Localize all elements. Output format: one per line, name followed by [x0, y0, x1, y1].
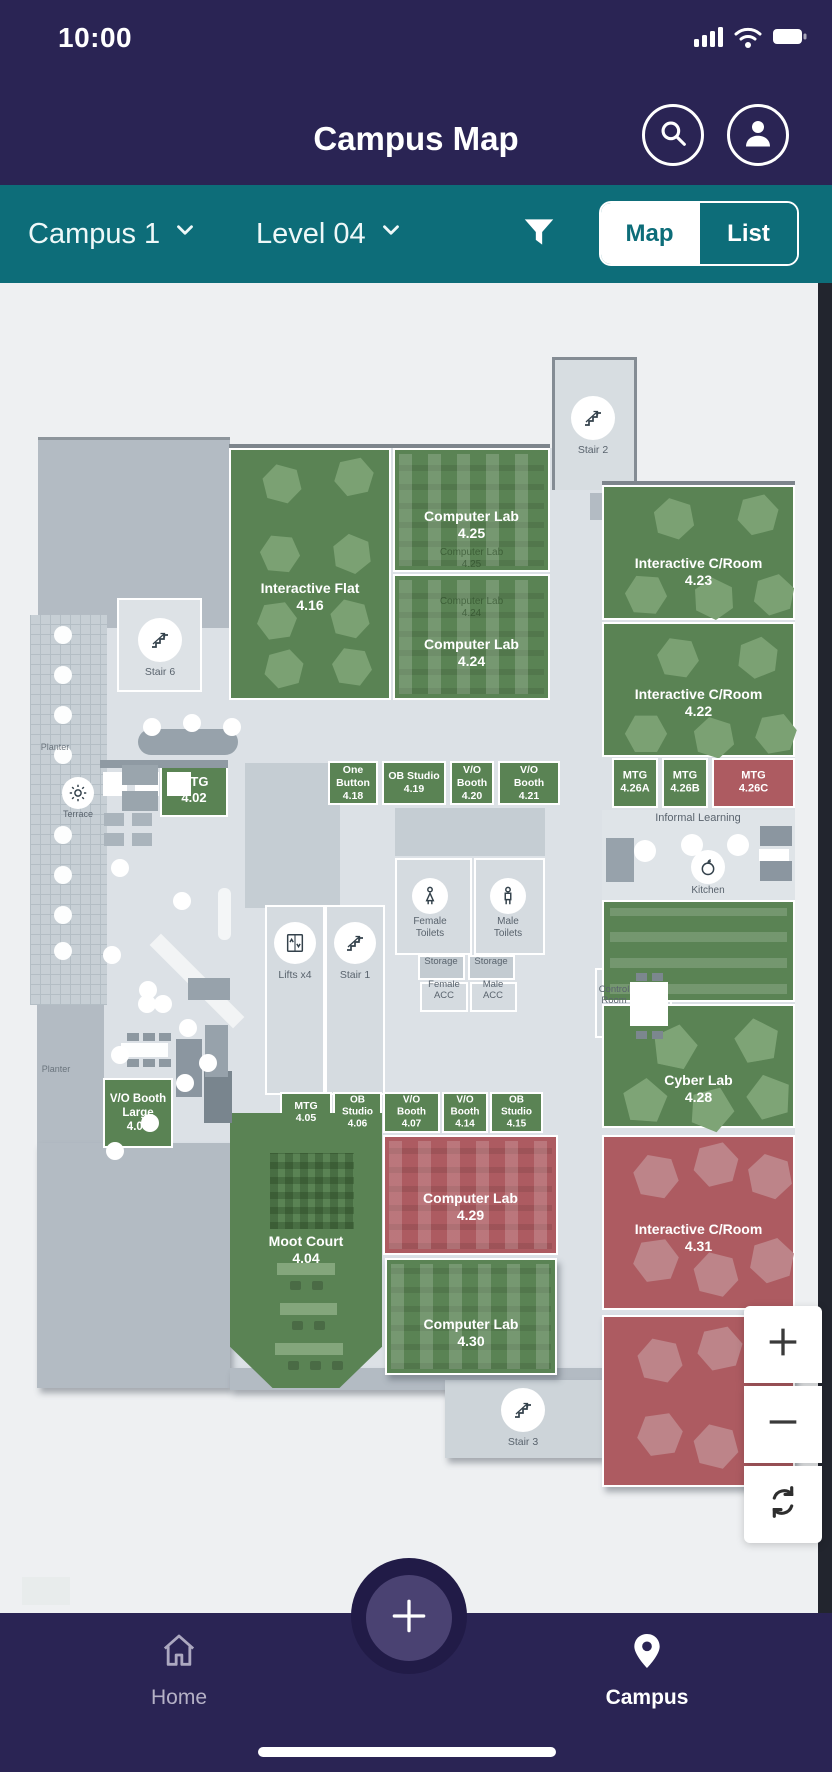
room-label-computer-lab-429: Computer Lab4.29 [385, 1190, 556, 1224]
table-cluster [629, 1151, 684, 1202]
room-label-interactive-croom-422: Interactive C/Room4.22 [604, 686, 793, 720]
bench-table [280, 1303, 337, 1315]
home-icon [159, 1631, 199, 1676]
chair [652, 973, 663, 981]
table-cluster [730, 631, 786, 684]
room-vo-booth-421[interactable]: V/OBooth4.21 [498, 761, 560, 805]
room-ob-studio-415[interactable]: OBStudio4.15 [490, 1092, 543, 1133]
room-caption-computer-lab-424: Computer Lab4.24 [395, 596, 548, 619]
room-label-mtg-405: MTG4.05 [282, 1100, 330, 1126]
seating-rows [270, 1153, 354, 1229]
search-icon [656, 116, 690, 155]
label-informal-learning: Informal Learning [628, 812, 768, 825]
map-zoom-controls [744, 1306, 822, 1543]
round-table [727, 834, 749, 856]
female-toilets-icon [412, 878, 448, 914]
table-cluster [633, 1410, 687, 1459]
room-label-ob-studio-419: OB Studio4.19 [384, 770, 444, 796]
table-cluster [687, 1420, 744, 1474]
label-planter-north: Planter [0, 742, 125, 753]
room-label-interactive-croom-423: Interactive C/Room4.23 [604, 555, 793, 589]
terrace-table [54, 906, 72, 924]
campus-selector[interactable]: Campus 1 [28, 185, 198, 283]
table-cluster [257, 460, 307, 507]
male-toilets-label: MaleToilets [453, 916, 563, 940]
person-icon [740, 115, 776, 156]
nav-home-label: Home [151, 1686, 207, 1710]
round-table [179, 1019, 197, 1037]
stair-1-icon [334, 922, 376, 964]
round-table [176, 1074, 194, 1092]
room-label-vo-booth-large-403: V/O BoothLarge4.03 [105, 1092, 171, 1134]
filter-button[interactable] [514, 209, 564, 259]
terrace-table [54, 706, 72, 724]
room-computer-lab-424[interactable]: Computer Lab4.24Computer Lab4.24 [393, 574, 550, 700]
room-ob-studio-406[interactable]: OBStudio4.06 [333, 1092, 382, 1133]
refresh-icon [764, 1483, 802, 1526]
room-label-computer-lab-430: Computer Lab4.30 [387, 1316, 555, 1350]
label-male-acc: MaleACC [423, 979, 563, 1002]
toggle-list[interactable]: List [698, 203, 797, 264]
round-table [634, 840, 656, 862]
table-cluster [741, 1149, 800, 1205]
room-one-button-418[interactable]: OneButton4.18 [328, 761, 378, 805]
room-label-mtg-426a: MTG4.26A [614, 770, 656, 797]
room-moot-court-404[interactable]: Moot Court4.04 [230, 1113, 382, 1388]
stair-6-label: Stair 6 [105, 666, 215, 679]
campus-selector-value: Campus 1 [28, 218, 160, 251]
stair-3-label: Stair 3 [468, 1436, 578, 1449]
room-label-cyber-lab-428: Cyber Lab4.28 [604, 1072, 793, 1106]
seat-row [218, 888, 231, 940]
round-table [103, 946, 121, 964]
zoom-out-button[interactable] [744, 1386, 822, 1463]
label-storage-2: Storage [421, 956, 561, 967]
sofa [760, 861, 792, 881]
page-title: Campus Map [0, 120, 832, 158]
terrace-table [54, 666, 72, 684]
chair [288, 1361, 299, 1370]
room-label-vo-booth-414: V/OBooth4.14 [444, 1094, 486, 1131]
chair [143, 1033, 155, 1041]
lifts-x4-icon [274, 922, 316, 964]
terrace-table [54, 626, 72, 644]
chair [159, 1033, 171, 1041]
kitchen-label: Kitchen [653, 885, 763, 897]
room-label-ob-studio-406: OBStudio4.06 [335, 1094, 380, 1131]
room-mtg-426b[interactable]: MTG4.26B [662, 758, 708, 808]
map-fragment [22, 1577, 70, 1605]
app-header: Campus Map [0, 64, 832, 185]
room-computer-lab-425[interactable]: Computer Lab4.25Computer Lab4.25 [393, 448, 550, 572]
room-interactive-croom-431[interactable]: Interactive C/Room4.31 [602, 1135, 795, 1310]
nav-item-home[interactable]: Home [99, 1631, 259, 1710]
chair [332, 1361, 343, 1370]
table-cluster [329, 645, 376, 688]
round-table [111, 859, 129, 877]
desk [122, 791, 158, 811]
table-cluster [687, 1138, 744, 1192]
zoom-in-button[interactable] [744, 1306, 822, 1383]
room-label-computer-lab-424: Computer Lab4.24 [395, 636, 548, 670]
table-cluster [692, 1322, 748, 1374]
chevron-down-icon [172, 217, 198, 251]
table [759, 849, 789, 861]
table-cluster [731, 1014, 784, 1065]
table-cluster [259, 645, 309, 692]
room-label-mtg-402: MTG4.02 [162, 774, 226, 806]
table-cluster [732, 490, 784, 539]
room-caption-computer-lab-425: Computer Lab4.25 [395, 547, 548, 570]
room-interactive-flat-416[interactable]: Interactive Flat4.16 [229, 448, 391, 700]
sofa [606, 838, 634, 882]
label-control-room: ControlRoom [544, 984, 684, 1007]
kitchen-icon [691, 850, 725, 884]
add-button[interactable] [366, 1575, 452, 1661]
label-planter-south: Planter [0, 1064, 126, 1075]
level-selector[interactable]: Level 04 [256, 185, 404, 283]
nav-campus-label: Campus [606, 1686, 689, 1710]
male-toilets-icon [490, 878, 526, 914]
battery-icon [772, 26, 808, 53]
chair [127, 1059, 139, 1067]
table-cluster [325, 529, 378, 580]
room-computer-lab-429[interactable]: Computer Lab4.29 [383, 1135, 558, 1255]
room-mtg-426a[interactable]: MTG4.26A [612, 758, 658, 808]
room-label-one-button-418: OneButton4.18 [330, 764, 376, 802]
table-cluster [330, 454, 379, 500]
room-label-interactive-flat-416: Interactive Flat4.16 [231, 580, 389, 614]
home-indicator[interactable] [258, 1747, 556, 1757]
service-block [395, 808, 545, 856]
room-label-ob-studio-415: OBStudio4.15 [492, 1094, 541, 1131]
stair-3-icon [501, 1388, 545, 1432]
desk [122, 765, 158, 785]
round-table [143, 718, 161, 736]
table-cluster [647, 493, 701, 544]
chair [127, 1033, 139, 1041]
room-vo-booth-414[interactable]: V/OBooth4.14 [442, 1092, 488, 1133]
wifi-icon [733, 26, 763, 53]
table [132, 813, 152, 826]
chair [292, 1321, 303, 1330]
room-label-mtg-426c: MTG4.26C [714, 770, 793, 797]
view-toggle: Map List [599, 201, 799, 266]
sofa [760, 826, 792, 846]
room-vo-booth-large-403[interactable]: V/O BoothLarge4.03 [103, 1078, 173, 1148]
planter-strip [37, 1005, 104, 1150]
room-interactive-croom-423[interactable]: Interactive C/Room4.23 [602, 485, 795, 620]
table [132, 833, 152, 846]
search-button[interactable] [642, 104, 704, 166]
room-vo-booth-407[interactable]: V/OBooth4.07 [383, 1092, 440, 1133]
filter-bar: Campus 1 Level 04 Map List [0, 185, 832, 283]
clock: 10:00 [58, 22, 132, 54]
room-computer-lab-430[interactable]: Computer Lab4.30 [385, 1258, 557, 1375]
terrace-table [54, 826, 72, 844]
profile-button[interactable] [727, 104, 789, 166]
room-label-vo-booth-421: V/OBooth4.21 [500, 764, 558, 802]
chair [310, 1361, 321, 1370]
terrace-table [54, 942, 72, 960]
phone-screen: 10:00 Campus Map [0, 0, 832, 1772]
chair [290, 1281, 301, 1290]
funnel-icon [520, 213, 558, 256]
round-table [223, 718, 241, 736]
bench-table [275, 1343, 343, 1355]
chair [159, 1059, 171, 1067]
stair-2-icon [571, 396, 615, 440]
level-selector-value: Level 04 [256, 218, 366, 251]
stair-2-label: Stair 2 [538, 444, 648, 457]
round-table [106, 1142, 124, 1160]
chair [636, 1031, 647, 1039]
campus-map[interactable]: Interactive Flat4.16Computer Lab4.25Comp… [0, 283, 832, 1613]
room-vo-booth-420[interactable]: V/OBooth4.20 [450, 761, 494, 805]
room-label-vo-booth-407: V/OBooth4.07 [385, 1094, 438, 1131]
stair-6-icon [138, 618, 182, 662]
chair [312, 1281, 323, 1290]
banquette [100, 760, 228, 768]
status-bar: 10:00 [0, 0, 832, 64]
reset-rotation-button[interactable] [744, 1466, 822, 1543]
sofa [188, 978, 230, 1000]
round-table [154, 995, 172, 1013]
table-cluster [653, 635, 702, 680]
minus-icon [763, 1402, 803, 1447]
table [104, 833, 124, 846]
room-label-interactive-croom-431: Interactive C/Room4.31 [604, 1221, 793, 1255]
chair [314, 1321, 325, 1330]
roof-block-southwest [37, 1143, 230, 1388]
room-label-moot-court-404: Moot Court4.04 [230, 1233, 382, 1267]
room-label-mtg-426b: MTG4.26B [664, 770, 706, 797]
terrace-label: Terrace [23, 809, 133, 820]
plus-icon [387, 1594, 431, 1643]
chair [143, 1059, 155, 1067]
chair [636, 973, 647, 981]
room-interactive-croom-422[interactable]: Interactive C/Room4.22 [602, 622, 795, 757]
chevron-down-icon [378, 217, 404, 251]
chair [652, 1031, 663, 1039]
room-ob-studio-419[interactable]: OB Studio4.19 [382, 761, 446, 805]
table-cluster [257, 533, 302, 574]
round-table [199, 1054, 217, 1072]
round-table [173, 892, 191, 910]
round-table [183, 714, 201, 732]
room-label-computer-lab-425: Computer Lab4.25 [395, 508, 548, 542]
service-core [245, 763, 340, 908]
signal-icon [694, 26, 724, 53]
table-cluster [648, 1020, 702, 1072]
bottom-nav: Home Campus [0, 1613, 832, 1772]
map-pin-icon [627, 1631, 667, 1676]
room-mtg-426c[interactable]: MTG4.26C [712, 758, 795, 808]
table-cluster [687, 1248, 744, 1302]
terrace-table [54, 866, 72, 884]
room-label-vo-booth-420: V/OBooth4.20 [452, 764, 492, 802]
sofa [204, 1071, 232, 1123]
toggle-map[interactable]: Map [601, 203, 698, 264]
terrace-icon [62, 777, 94, 809]
table-cluster [632, 1334, 688, 1386]
plus-icon [763, 1322, 803, 1367]
nav-item-campus[interactable]: Campus [567, 1631, 727, 1710]
round-table [111, 1046, 129, 1064]
